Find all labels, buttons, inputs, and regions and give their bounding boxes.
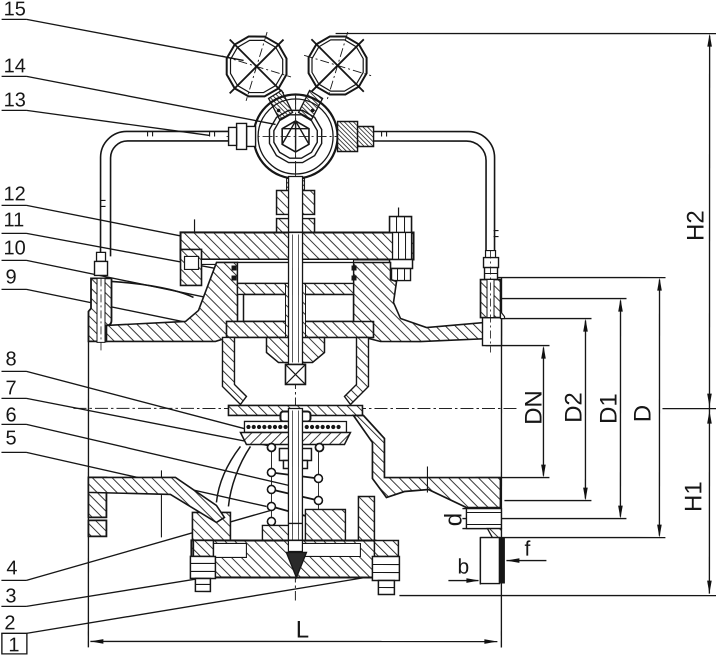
- svg-text:H1: H1: [680, 481, 707, 512]
- svg-text:2: 2: [4, 612, 15, 634]
- svg-text:9: 9: [6, 266, 17, 288]
- svg-text:4: 4: [6, 557, 17, 579]
- svg-text:DN: DN: [520, 390, 547, 425]
- svg-text:D1: D1: [595, 393, 622, 424]
- svg-text:10: 10: [4, 237, 26, 259]
- svg-text:D2: D2: [560, 392, 587, 423]
- svg-text:6: 6: [5, 404, 16, 426]
- svg-text:f: f: [524, 538, 530, 561]
- svg-text:12: 12: [4, 183, 26, 205]
- svg-text:H2: H2: [683, 210, 710, 241]
- svg-text:7: 7: [5, 377, 16, 399]
- svg-text:14: 14: [4, 55, 26, 77]
- svg-text:15: 15: [4, 0, 26, 20]
- svg-text:d: d: [440, 513, 467, 526]
- svg-text:13: 13: [4, 89, 26, 111]
- svg-text:D: D: [629, 405, 656, 422]
- svg-text:b: b: [458, 556, 470, 579]
- svg-text:1: 1: [8, 634, 19, 656]
- svg-text:8: 8: [5, 348, 16, 370]
- svg-text:11: 11: [4, 209, 25, 231]
- svg-text:3: 3: [5, 585, 16, 607]
- svg-text:L: L: [296, 616, 309, 643]
- svg-text:5: 5: [5, 427, 16, 449]
